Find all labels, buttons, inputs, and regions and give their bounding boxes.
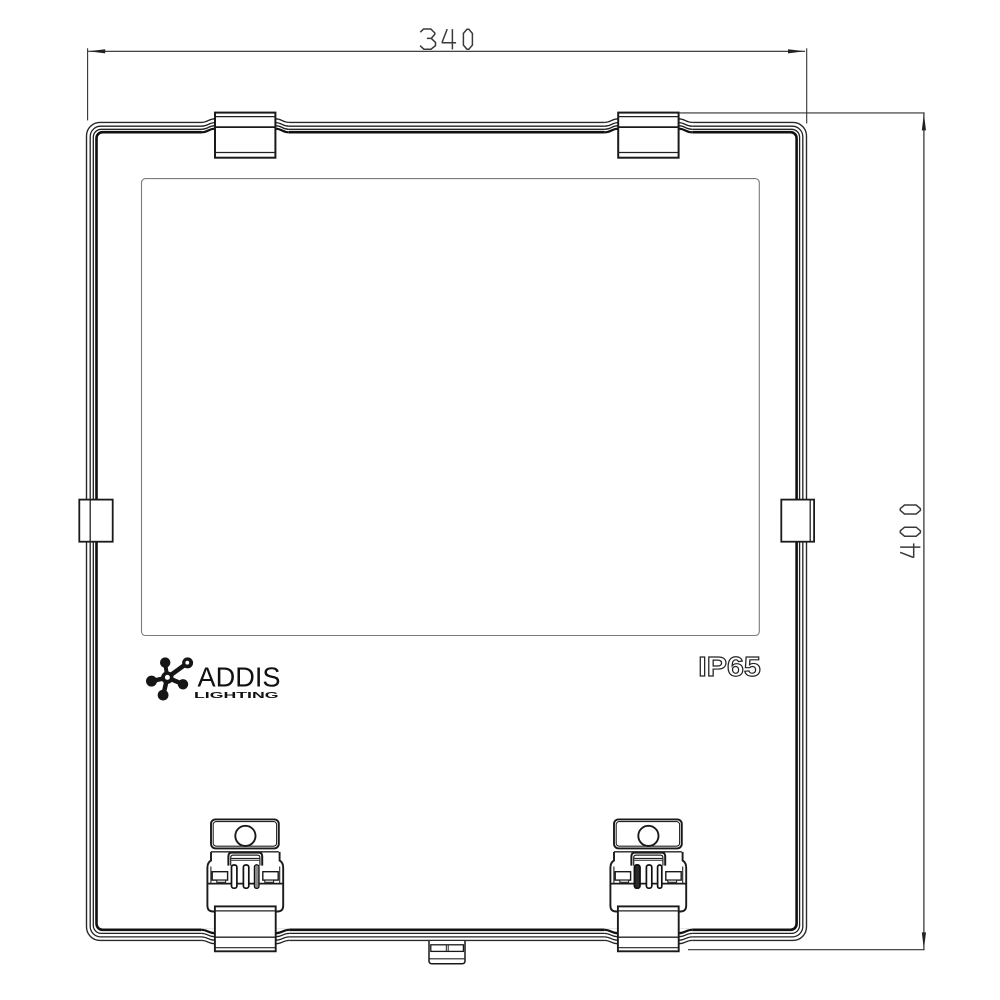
svg-text:IP65: IP65 — [698, 651, 761, 682]
svg-text:ADDIS: ADDIS — [198, 661, 281, 692]
svg-text:LIGHTING: LIGHTING — [194, 690, 279, 700]
